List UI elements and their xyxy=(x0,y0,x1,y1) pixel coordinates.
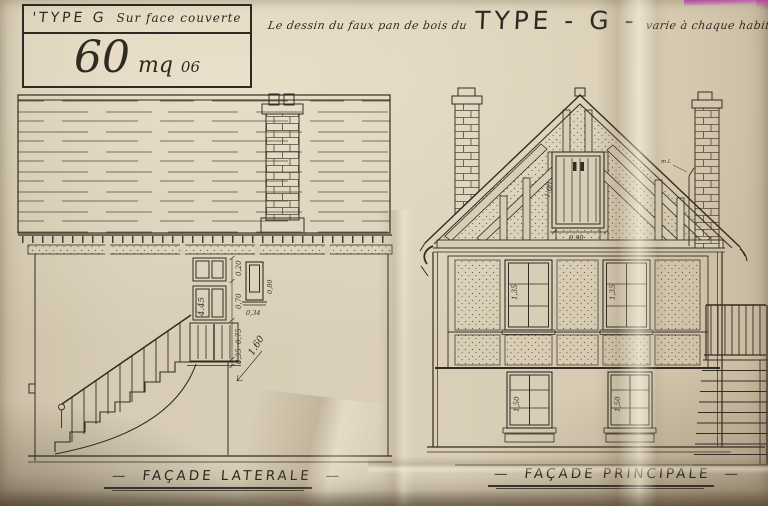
dim-lower-window-right: 1,50 xyxy=(614,396,622,412)
side-roof xyxy=(18,95,390,233)
loft-door: 1.60 0.90 xyxy=(543,152,608,242)
dim-diagonal: 1.60 xyxy=(246,334,267,358)
front-stairs xyxy=(693,305,767,465)
title-block: 'TYPE G Sur face couverte 60 mq 06 xyxy=(22,4,252,88)
area-value: 60 xyxy=(74,36,130,80)
dim-upper-window-left: 1,35 xyxy=(511,284,519,300)
ground-lines xyxy=(427,447,767,465)
bottom-edge-shadow xyxy=(0,490,768,506)
exterior-stairs xyxy=(55,315,196,454)
caption-right-underline-2 xyxy=(496,488,704,489)
dim-vent-width: 0,34 xyxy=(246,309,260,317)
side-door xyxy=(187,258,241,455)
caption-left-underline xyxy=(104,487,312,489)
dim-chain-2: 0,75 xyxy=(235,328,243,344)
lower-window-right: 1,50 xyxy=(604,372,656,442)
header-note: Le dessin du faux pan de bois du TYPE - … xyxy=(268,6,764,35)
caption-left-dash-start: — xyxy=(111,468,129,484)
area-row: 60 mq 06 xyxy=(24,34,250,80)
dim-chain-3: 0,35 xyxy=(235,348,243,364)
dim-loft-door-width: 0.90 xyxy=(569,234,583,242)
chimney-left xyxy=(452,88,482,214)
upper-window-left: 1,35 xyxy=(502,260,555,335)
note-suffix: varie à chaque habitation xyxy=(645,19,768,32)
lower-window-left: 1,50 xyxy=(503,372,556,442)
caption-right-dash-end: — xyxy=(724,466,742,482)
eaves-course xyxy=(18,235,392,255)
caption-left-text: FAÇADE LATERALE xyxy=(142,468,313,484)
side-wall xyxy=(28,254,392,462)
caption-left: — FAÇADE LATERALE — xyxy=(111,468,343,484)
side-chimney xyxy=(261,94,304,233)
caption-left-dash-end: — xyxy=(325,468,343,484)
caption-right: — FAÇADE PRINCIPALE — xyxy=(493,466,741,482)
dim-door-height: 4.45 xyxy=(197,297,207,317)
caption-right-underline xyxy=(488,485,714,487)
upper-window-right: 1,35 xyxy=(600,260,653,335)
front-wall-frame xyxy=(433,252,722,447)
note-type-label: TYPE - G - xyxy=(474,6,638,35)
dim-chain-0: 0,20 xyxy=(235,260,243,276)
surface-label: Sur face couverte xyxy=(117,11,242,25)
front-elevation-drawing: 1.60 0.90 m.l. xyxy=(415,68,768,470)
chimney-note: m.l. xyxy=(661,159,672,165)
title-row: 'TYPE G Sur face couverte xyxy=(24,6,250,34)
dim-upper-window-right: 1,35 xyxy=(609,284,617,300)
caption-right-text: FAÇADE PRINCIPALE xyxy=(524,466,711,482)
dim-chain-1: 0,70 xyxy=(235,293,243,309)
vent-window: 0,80 0,34 xyxy=(242,262,274,317)
dim-lower-window-left: 1,50 xyxy=(513,396,521,412)
dim-vent-height: 0,80 xyxy=(266,280,274,294)
area-decimals: 06 xyxy=(181,58,200,76)
side-elevation-drawing: 0,20 0,70 0,75 0,35 4.45 1.60 0,80 0,34 xyxy=(10,88,400,470)
caption-left-underline-2 xyxy=(112,490,304,491)
area-unit: mq xyxy=(138,53,173,78)
note-prefix: Le dessin du faux pan de bois du xyxy=(267,19,468,32)
eaves-line xyxy=(433,248,725,252)
drawing-sheet: 'TYPE G Sur face couverte 60 mq 06 Le de… xyxy=(0,0,768,506)
caption-right-dash-start: — xyxy=(493,466,511,482)
type-label: 'TYPE G xyxy=(31,10,107,26)
